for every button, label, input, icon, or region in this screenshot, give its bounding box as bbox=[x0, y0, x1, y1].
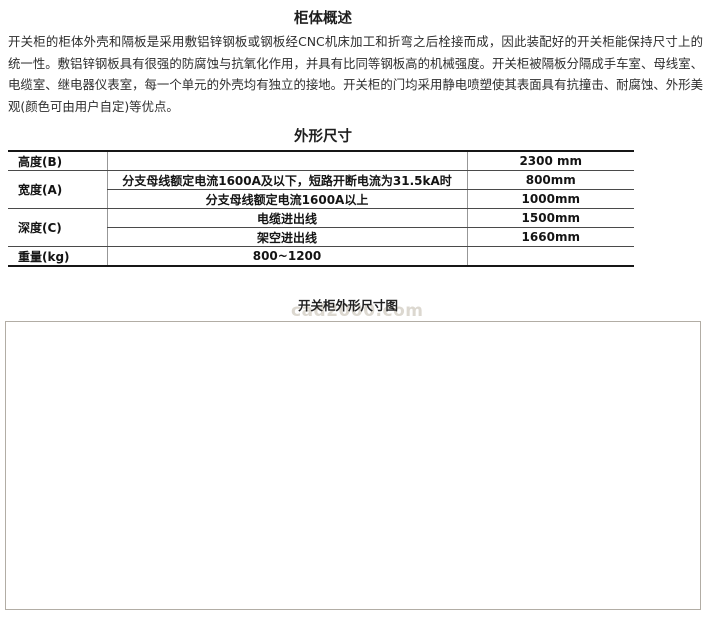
cabinet-dimension-drawing: A C bbox=[0, 0, 175, 261]
row-value: 1660mm bbox=[467, 228, 634, 247]
row-value: 800mm bbox=[467, 171, 634, 190]
row-value bbox=[467, 247, 634, 267]
row-value: 1000mm bbox=[467, 190, 634, 209]
row-value: 1500mm bbox=[467, 209, 634, 228]
diagram-frame: A C bbox=[5, 321, 701, 610]
diagram-caption: 开关柜外形尺寸图 bbox=[8, 295, 688, 314]
row-value: 2300 mm bbox=[467, 151, 634, 171]
